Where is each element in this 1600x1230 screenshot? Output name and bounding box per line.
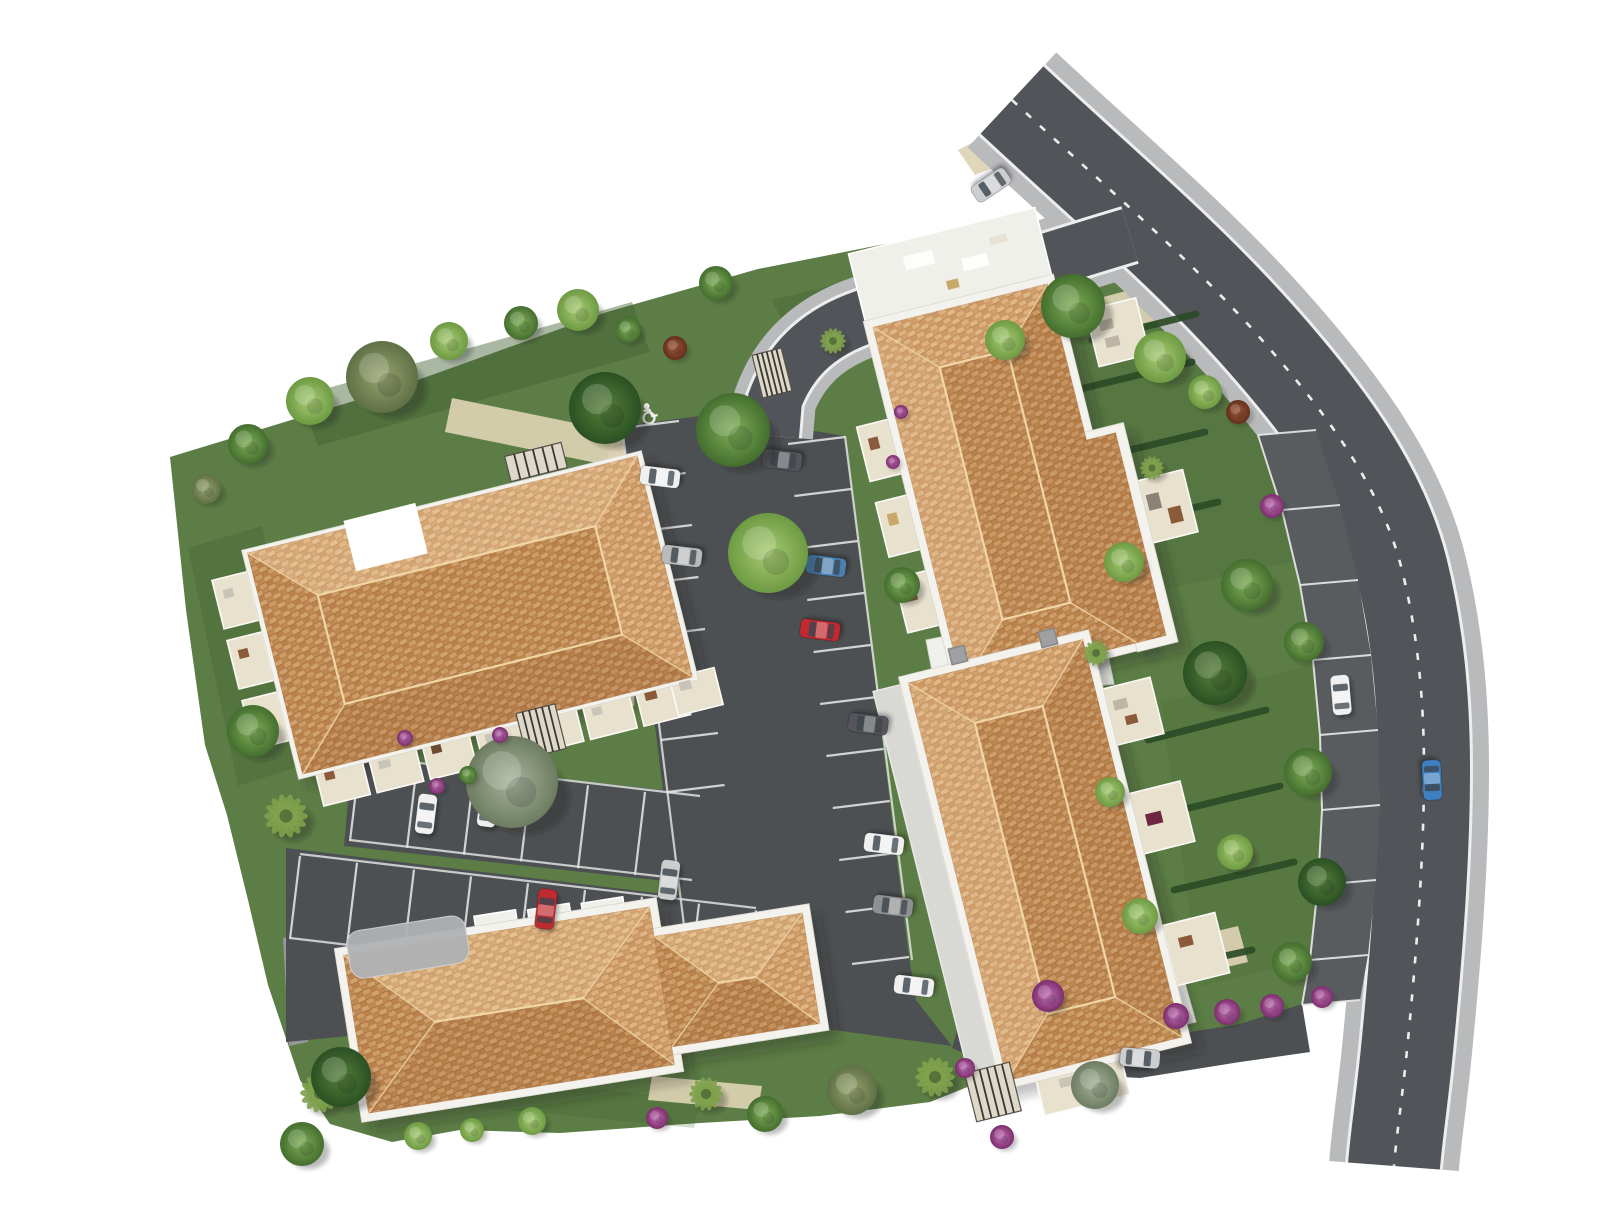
car: [1330, 674, 1355, 719]
site-plan: [0, 0, 1600, 1230]
car: [1116, 1047, 1161, 1072]
tree: [430, 322, 473, 363]
flowering-shrub: [990, 1125, 1017, 1151]
tree: [280, 1122, 330, 1169]
site-plan-rendering: [0, 0, 1600, 1230]
skylight: [948, 645, 967, 664]
car: [1419, 757, 1443, 801]
skylight: [1038, 628, 1057, 647]
